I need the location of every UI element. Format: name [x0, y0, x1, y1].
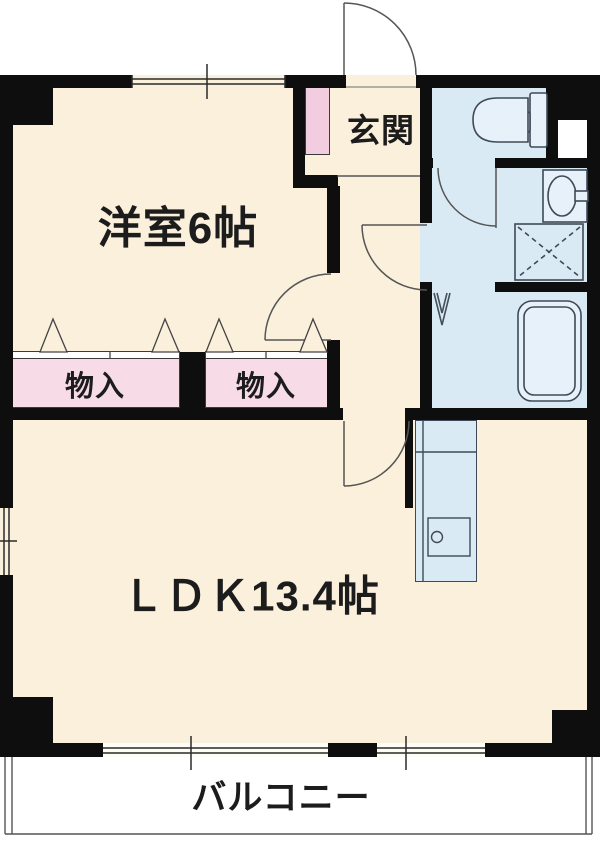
wall-main-left	[0, 408, 343, 420]
closet-2-track	[205, 351, 328, 359]
ldk-label: ＬＤＫ13.4帖	[122, 563, 380, 624]
shoe-cabinet	[305, 85, 330, 155]
wall-hall-left-lower	[327, 340, 340, 410]
wall-toilet-bottom-left	[420, 158, 433, 168]
wall-left-upper	[0, 88, 13, 508]
wall-toilet-bottom-right	[495, 158, 548, 168]
wall-closet-divider	[180, 352, 205, 408]
wall-sanitary-left-lower	[420, 282, 432, 408]
wall-bath-top	[495, 282, 587, 292]
window-top-gap	[132, 75, 285, 88]
window-bottom-2-gap	[377, 743, 485, 757]
wall-entrance-left	[293, 85, 305, 176]
closet-2-label: 物入	[236, 363, 296, 405]
window-left-gap	[0, 508, 13, 575]
front-door-swing-icon	[344, 3, 416, 75]
window-bottom-1-gap	[103, 743, 328, 757]
doorway-toilet	[433, 158, 495, 168]
closet-1-label: 物入	[65, 363, 125, 405]
doorway-washroom	[420, 223, 432, 282]
wall-kitchen-stub	[405, 420, 413, 508]
front-door-gap	[346, 75, 416, 88]
pipe-space	[558, 120, 587, 158]
toilet-room	[432, 85, 548, 158]
wall-bottom-3	[485, 743, 600, 757]
western-room-label: 洋室6帖	[98, 192, 258, 256]
corner-bottom-left	[13, 697, 53, 747]
washroom	[432, 168, 587, 282]
wall-sanitary-left-upper	[420, 85, 432, 223]
wall-main-right	[405, 408, 600, 420]
entrance-label: 玄関	[347, 104, 415, 152]
wall-hall-left-upper	[327, 186, 340, 273]
closet-1-track	[12, 351, 180, 359]
wall-bottom-1	[0, 743, 103, 757]
doorway-bath	[432, 282, 495, 292]
floor-plan: 洋室6帖 玄関 物入 物入 ＬＤＫ13.4帖 バルコニー	[0, 0, 600, 850]
balcony-label: バルコニー	[191, 770, 370, 821]
kitchen-counter	[415, 420, 477, 582]
wall-left-lower	[0, 575, 13, 757]
wall-bottom-2	[328, 743, 377, 757]
bathroom	[432, 292, 587, 408]
